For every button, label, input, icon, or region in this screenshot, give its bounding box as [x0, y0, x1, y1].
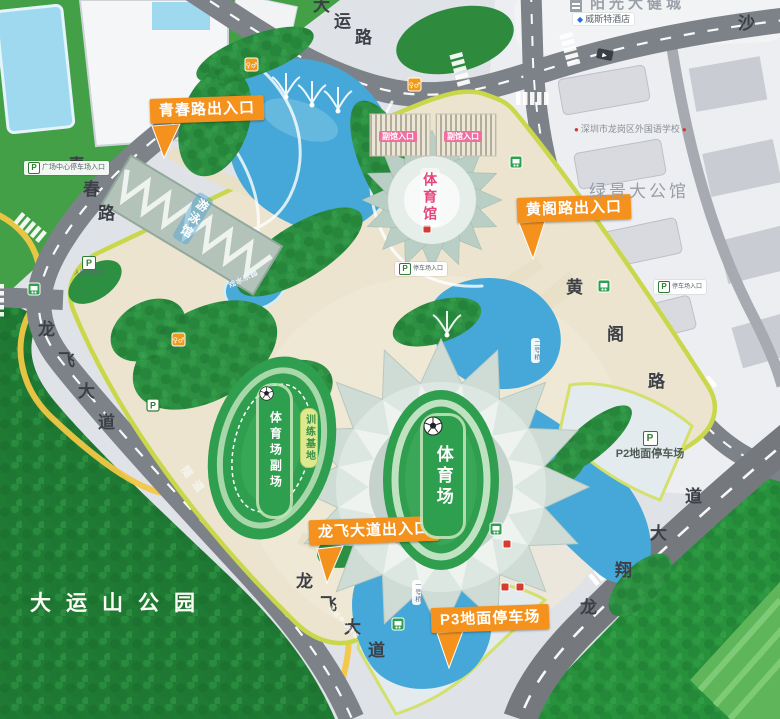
entrance-label-qingchun: 青春路出入口 [150, 95, 265, 124]
mansion-label: 绿景大公馆 [589, 182, 689, 202]
hotel-diamond-icon: ◆ [577, 15, 583, 24]
mansion-lot-text: 停车场入口 [672, 284, 702, 291]
aux-field-label-text: 体育场副场 [268, 411, 282, 491]
aux-field-label: 体育场副场 [259, 386, 290, 516]
huangge-lot-text: 停车场入口 [413, 266, 443, 273]
parking-icon: P [658, 281, 670, 293]
parking-icon: P [643, 431, 658, 446]
pool-northwest [0, 5, 74, 133]
hotel-label: ◆ 威斯特酒店 [573, 13, 634, 25]
plaza-parking-text: 广场中心停车场入口 [42, 164, 105, 172]
hotel-text: 威斯特酒店 [585, 14, 630, 24]
bridge-no2-label: 二号桥 [531, 338, 540, 363]
huangge-lot-entrance-label: P 停车场入口 [395, 262, 447, 276]
school-dot-icon: ● [574, 125, 579, 134]
park-map: P ♀♂ [0, 0, 780, 719]
p2-parking-text: P2地面停车场 [616, 448, 684, 461]
gymnasium-label: 体育馆 [420, 168, 440, 227]
entrance-label-longfei: 龙飞大道出入口 [309, 516, 440, 546]
parking-icon: P [82, 256, 96, 270]
plaza-parking-entrance-label: P 广场中心停车场入口 [24, 161, 109, 175]
soccer-ball-icon [423, 416, 443, 436]
hall-entrance-label-west: 副馆入口 [379, 131, 417, 142]
bridge-no1-label: 一号桥 [412, 580, 421, 605]
stadium-label-text: 体育场 [433, 445, 453, 508]
training-base-label: 训练基地 [300, 408, 318, 468]
park-name-label: 大运山公园 [30, 592, 210, 616]
stadium-label: 体育场 [423, 416, 463, 536]
civil-defense-parking-label: P 人防停车场 [74, 256, 104, 278]
school-label: ● 深圳市龙岗区外国语学校 ● [574, 124, 687, 134]
soccer-ball-icon [259, 386, 274, 401]
sunshine-city-label: 阳光大健城 [590, 0, 685, 12]
parking-icon: P [399, 263, 411, 275]
school-dot-icon: ● [682, 125, 687, 134]
civil-defense-text: 人防停车场 [74, 271, 104, 278]
mansion-lot-entrance-label: P 停车场入口 [654, 280, 706, 294]
sunshine-badge-icon [570, 0, 582, 12]
p2-parking-label: P P2地面停车场 [600, 431, 700, 461]
parking-icon: P [28, 162, 40, 174]
school-text: 深圳市龙岗区外国语学校 [581, 124, 680, 134]
p3-parking-label: P3地面停车场 [431, 604, 550, 633]
hall-entrance-label-east: 副馆入口 [444, 131, 482, 142]
